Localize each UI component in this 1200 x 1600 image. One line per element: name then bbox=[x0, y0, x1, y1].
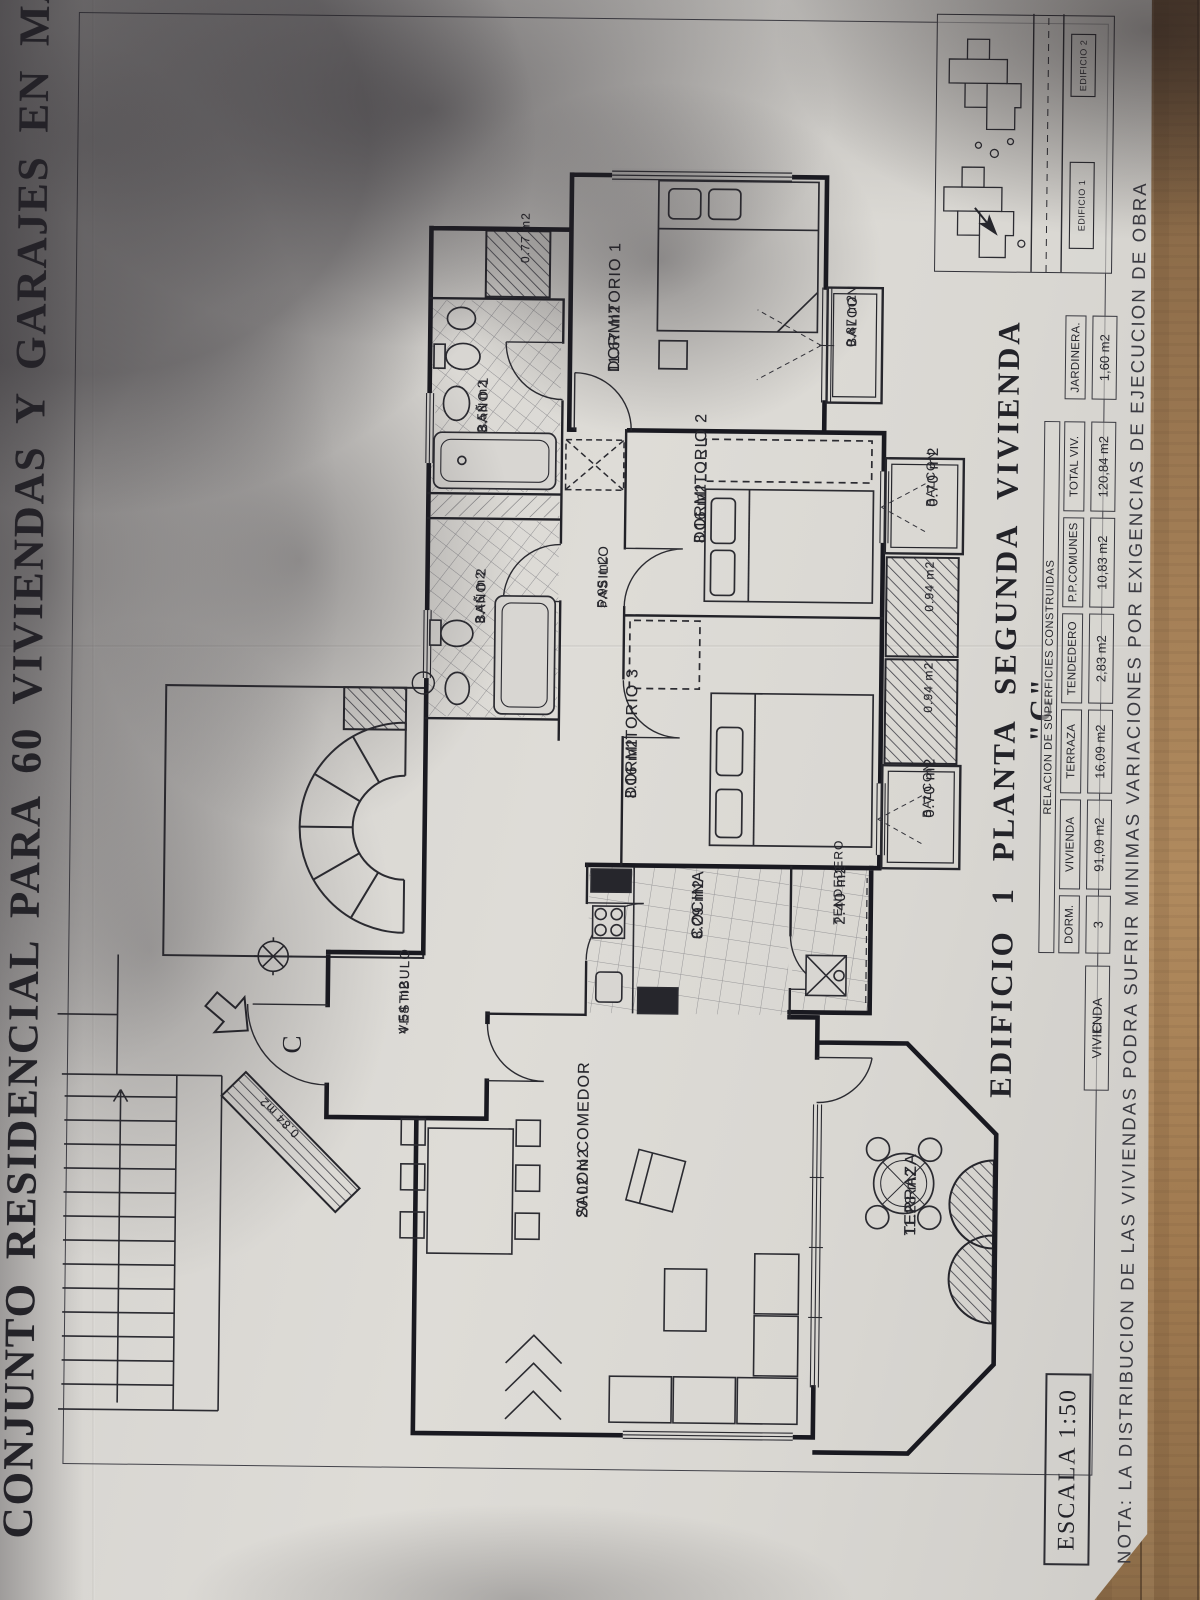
photo-of-floor-plan: CONJUNTO RESIDENCIAL PARA 60 VIVIENDAS Y… bbox=[0, 0, 1200, 1600]
scale-box: ESCALA 1:50 bbox=[1043, 1373, 1091, 1566]
sink-1-icon bbox=[443, 386, 469, 420]
floor-plan-svg bbox=[52, 114, 1027, 1485]
architectural-drawing: CONJUNTO RESIDENCIAL PARA 60 VIVIENDAS Y… bbox=[0, 0, 1200, 1600]
col-totalviv-header: TOTAL VIV. bbox=[1063, 421, 1085, 511]
oven-icon bbox=[638, 987, 678, 1013]
unit-letter: C bbox=[277, 1035, 308, 1053]
site-road bbox=[1031, 14, 1064, 272]
col-jardinera-header: JARDINERA. bbox=[1065, 315, 1087, 399]
inset-label-edificio-2: EDIFICIO 2 bbox=[1078, 40, 1089, 92]
col-dorm-value: 3 bbox=[1085, 896, 1111, 954]
surfaces-table: RELACION DE SUPERFICIES CONSTRUIDAS VIVI… bbox=[1037, 310, 1122, 1091]
entry-arrow-icon bbox=[196, 982, 262, 1048]
wardrobe-dorm2-icon bbox=[706, 439, 872, 483]
col-vivienda-value: 91,09 m2 bbox=[1086, 800, 1112, 890]
bidet-1-icon bbox=[447, 307, 475, 329]
nightstand-icon bbox=[659, 341, 687, 369]
bed-dorm2-icon bbox=[704, 489, 873, 603]
kitchen-sink-icon bbox=[596, 972, 622, 1002]
bedroom-furniture bbox=[627, 180, 879, 847]
toilet-1-icon bbox=[446, 343, 480, 369]
zigzag-divider bbox=[505, 1335, 562, 1420]
col-ppcomunes-value: 10,83 m2 bbox=[1089, 518, 1115, 608]
col-terraza-value: 16,09 m2 bbox=[1087, 710, 1113, 794]
living-room-furniture bbox=[398, 1119, 800, 1425]
dashed-duct bbox=[566, 440, 625, 491]
toilet-2-tank bbox=[430, 620, 441, 645]
floor-finishes bbox=[425, 300, 876, 1016]
col-tendedero-header: TENDEDERO bbox=[1061, 613, 1083, 703]
sofa-icon bbox=[609, 1376, 672, 1423]
site-plan-svg bbox=[935, 13, 1116, 273]
sink-2-icon bbox=[445, 672, 469, 704]
bed-dorm3-icon bbox=[709, 693, 873, 847]
outer-walls bbox=[323, 172, 1007, 1455]
table-row-label: VIVIENDAC bbox=[1084, 966, 1110, 1091]
bed-dorm1-icon bbox=[657, 181, 819, 333]
col-dorm-header: DORM. bbox=[1058, 895, 1080, 953]
bathtub-1-inner bbox=[441, 439, 549, 482]
bathtub-1-drain bbox=[458, 456, 466, 464]
col-totalviv-value: 120,84 m2 bbox=[1090, 422, 1116, 512]
coffee-table-icon bbox=[664, 1269, 707, 1331]
col-vivienda-header: VIVIENDA bbox=[1059, 799, 1081, 889]
terrace-planter-lobe-2 bbox=[949, 1160, 994, 1248]
bathtub-2-inner bbox=[501, 603, 548, 708]
toilet-1-tank bbox=[434, 344, 445, 368]
col-terraza-header: TERRAZA bbox=[1060, 709, 1082, 793]
fridge-icon bbox=[591, 869, 631, 892]
inset-label-edificio-1: EDIFICIO 1 bbox=[1076, 180, 1087, 232]
armchair-icon bbox=[626, 1149, 686, 1211]
bath-duct-hatch bbox=[430, 495, 559, 517]
entry-planter bbox=[220, 1072, 361, 1213]
stairwell-steps bbox=[53, 954, 223, 1411]
col-tendedero-value: 2,83 m2 bbox=[1088, 614, 1114, 704]
site-plan-inset: EDIFICIO 1 EDIFICIO 2 bbox=[934, 14, 1115, 274]
toilet-2-icon bbox=[441, 620, 473, 646]
col-ppcomunes-header: P.P.COMUNES bbox=[1062, 517, 1084, 607]
dining-table-icon bbox=[427, 1128, 513, 1254]
col-jardinera-value: 1,60 m2 bbox=[1092, 316, 1118, 400]
